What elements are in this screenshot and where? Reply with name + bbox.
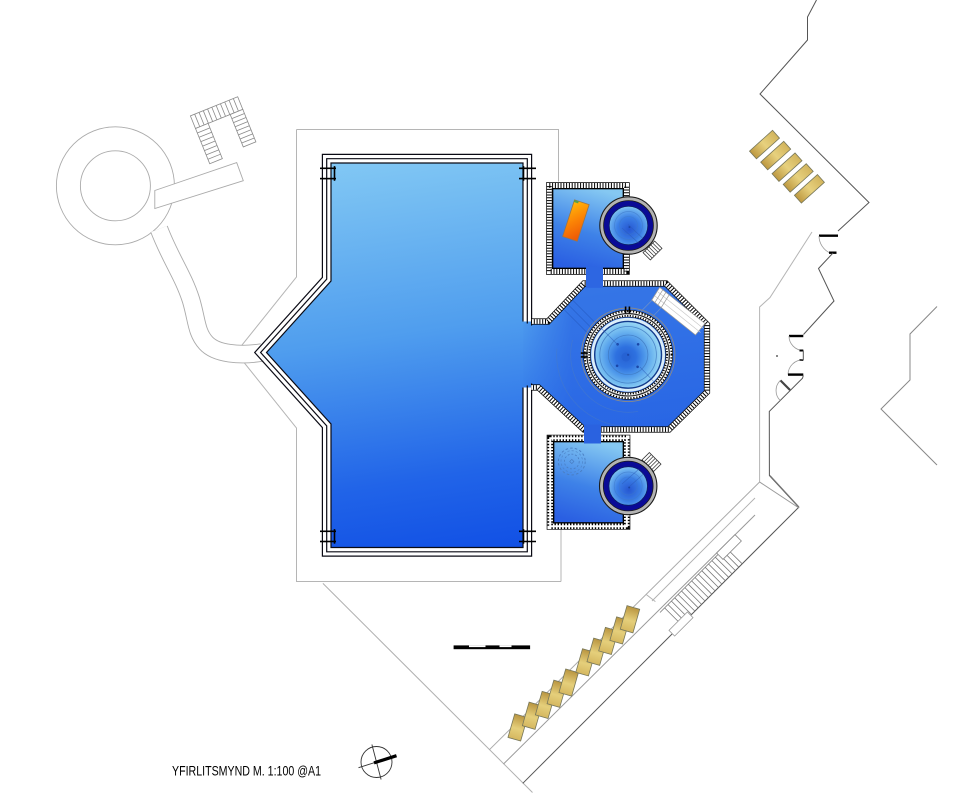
svg-text:YFIRLITSMYND M. 1:100 @A1: YFIRLITSMYND M. 1:100 @A1 bbox=[172, 763, 321, 779]
